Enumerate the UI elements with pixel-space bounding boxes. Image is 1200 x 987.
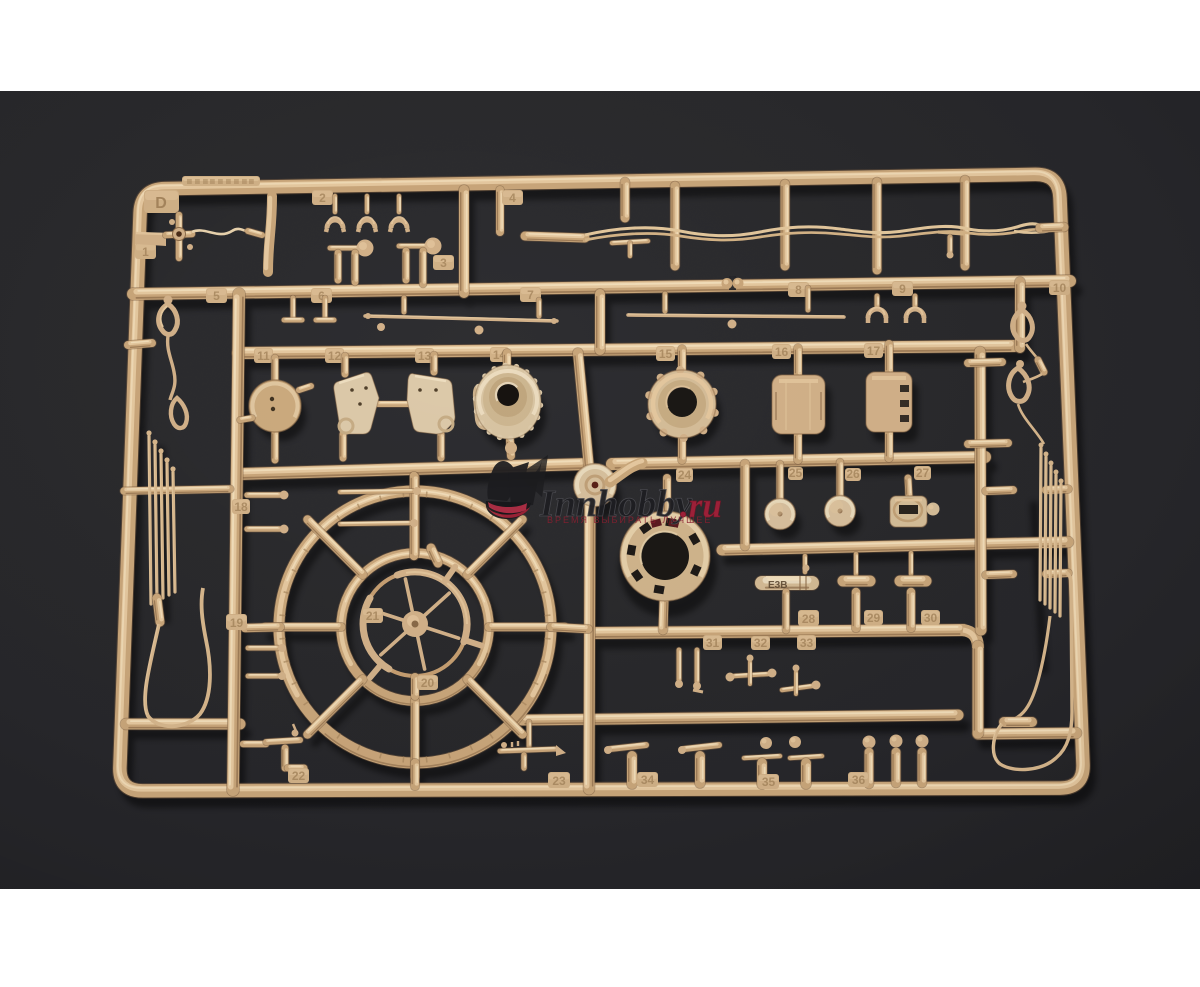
svg-text:ВРЕМЯ ВЫБИРАТЬ ЛУЧШЕЕ: ВРЕМЯ ВЫБИРАТЬ ЛУЧШЕЕ [547,515,712,525]
